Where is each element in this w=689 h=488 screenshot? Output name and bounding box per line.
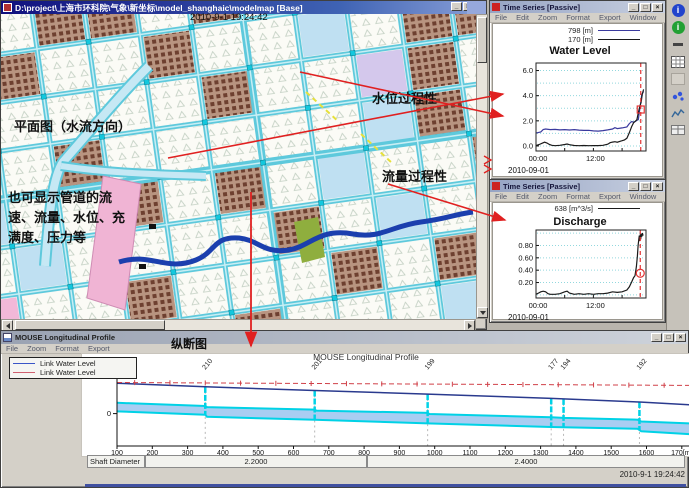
svg-text:0.60: 0.60 bbox=[518, 253, 533, 262]
svg-text:2010-09-01: 2010-09-01 bbox=[508, 313, 549, 322]
water-level-window: Time Series [Passive] _ □ × FileEditZoom… bbox=[489, 0, 666, 180]
water-level-chart: 0.02.04.06.000:0012:002010-09-01 bbox=[506, 57, 656, 177]
map-window-icon bbox=[3, 3, 12, 12]
profile-window-icon bbox=[3, 333, 12, 342]
minimize-button[interactable]: _ bbox=[451, 2, 462, 11]
profile-timestamp: 2010-9-1 19:24:42 bbox=[535, 470, 685, 479]
report-icon[interactable] bbox=[669, 54, 687, 69]
svg-text:2010-09-01: 2010-09-01 bbox=[508, 166, 549, 175]
toolbar-icons: ii bbox=[667, 0, 689, 137]
water-level-legend: 798 [m] 170 [m] bbox=[520, 26, 640, 44]
right-arrow-icon bbox=[468, 323, 472, 329]
svg-text:0.40: 0.40 bbox=[518, 266, 533, 275]
minimize-button[interactable]: _ bbox=[628, 182, 639, 191]
close-button[interactable]: × bbox=[675, 333, 686, 342]
menu-item-edit[interactable]: Edit bbox=[516, 192, 529, 201]
window-bottom-edge bbox=[85, 484, 686, 487]
discharge-legend: 638 [m^3/s] bbox=[516, 204, 640, 213]
profile-chart-title: MOUSE Longitudinal Profile bbox=[201, 352, 531, 362]
pipe-note-annotation: 也可显示管道的流速、流量、水位、充满度、压力等 bbox=[8, 188, 134, 248]
menu-item-format[interactable]: Format bbox=[566, 13, 590, 22]
menu-item-zoom[interactable]: Zoom bbox=[538, 192, 557, 201]
down-arrow-icon bbox=[480, 311, 486, 315]
legend-line-swatch bbox=[598, 30, 640, 31]
menu-item-edit[interactable]: Edit bbox=[516, 13, 529, 22]
close-button[interactable]: × bbox=[652, 3, 663, 12]
legend-line-swatch bbox=[598, 208, 640, 209]
map-vertical-scrollbar[interactable] bbox=[476, 14, 488, 319]
legend-line-swatch bbox=[13, 372, 35, 373]
water-level-window-title: Time Series [Passive] bbox=[503, 3, 625, 12]
menu-item-export[interactable]: Export bbox=[599, 192, 621, 201]
legend-line-swatch bbox=[598, 39, 640, 40]
profile-section-annotation: 纵断图 bbox=[171, 335, 207, 352]
svg-text:0.80: 0.80 bbox=[518, 241, 533, 250]
water-level-chart-title: Water Level bbox=[510, 45, 650, 57]
menu-item-export[interactable]: Export bbox=[88, 344, 110, 353]
maximize-button[interactable]: □ bbox=[640, 182, 651, 191]
water-level-hydrograph-annotation: 水位过程性 bbox=[372, 88, 437, 107]
profile-window-title: MOUSE Longitudinal Profile bbox=[15, 333, 648, 342]
profile-window-titlebar: MOUSE Longitudinal Profile _ □ × bbox=[1, 331, 688, 344]
menu-item-file[interactable]: File bbox=[6, 344, 18, 353]
legend-label: 170 [m] bbox=[568, 35, 593, 44]
chart-icon[interactable] bbox=[669, 105, 687, 120]
map-vscroll-thumb[interactable] bbox=[477, 17, 487, 63]
info-icon[interactable]: i bbox=[669, 3, 687, 18]
separator-icon[interactable] bbox=[669, 37, 687, 52]
discharge-chart: 0.200.400.600.8000:0012:002010-09-01 bbox=[506, 226, 656, 324]
discharge-window: Time Series [Passive] _ □ × FileEditZoom… bbox=[489, 179, 666, 323]
longitudinal-profile-chart: 2102011991771941921002003004005006007008… bbox=[81, 353, 689, 457]
svg-text:0: 0 bbox=[107, 409, 111, 418]
table-icon[interactable] bbox=[669, 122, 687, 137]
time-series-icon bbox=[492, 3, 500, 11]
discharge-window-buttons: _ □ × bbox=[628, 182, 663, 191]
profile-window: MOUSE Longitudinal Profile _ □ × FileZoo… bbox=[0, 330, 689, 488]
blank-icon[interactable] bbox=[669, 71, 687, 86]
minimize-button[interactable]: _ bbox=[628, 3, 639, 12]
legend-label: Link Water Level bbox=[40, 368, 96, 377]
profile-window-buttons: _ □ × bbox=[651, 333, 686, 342]
menu-item-file[interactable]: File bbox=[495, 192, 507, 201]
menu-item-window[interactable]: Window bbox=[630, 192, 657, 201]
application: D:\project\上海市环科院\气象\新坐标\model_shanghaic… bbox=[0, 0, 689, 488]
svg-text:2.0: 2.0 bbox=[523, 116, 533, 125]
legend-label: 798 [m] bbox=[568, 26, 593, 35]
water-level-window-buttons: _ □ × bbox=[628, 3, 663, 12]
ok-icon[interactable]: i bbox=[669, 20, 687, 35]
svg-text:0.20: 0.20 bbox=[518, 278, 533, 287]
map-datetime: 2010-9-1 19:24:42 bbox=[190, 12, 268, 23]
water-level-window-titlebar: Time Series [Passive] _ □ × bbox=[490, 1, 665, 13]
svg-text:12:00: 12:00 bbox=[586, 301, 605, 310]
svg-text:12:00: 12:00 bbox=[586, 154, 605, 163]
close-button[interactable]: × bbox=[652, 182, 663, 191]
map-window: D:\project\上海市环科院\气象\新坐标\model_shanghaic… bbox=[0, 0, 487, 330]
discharge-hydrograph-annotation: 流量过程性 bbox=[382, 166, 447, 185]
menu-item-zoom[interactable]: Zoom bbox=[538, 13, 557, 22]
svg-text:00:00: 00:00 bbox=[529, 301, 548, 310]
profile-legend: Link Water Level Link Water Level bbox=[9, 357, 137, 379]
titlebar-sliver bbox=[467, 1, 486, 14]
svg-text:6.0: 6.0 bbox=[523, 66, 533, 75]
shaft-diameter-value-cell: 2.4000 bbox=[367, 455, 685, 468]
shaft-diameter-label-cell: Shaft Diameter bbox=[87, 455, 145, 468]
menu-item-window[interactable]: Window bbox=[630, 13, 657, 22]
maximize-button[interactable]: □ bbox=[640, 3, 651, 12]
map-hscroll-thumb[interactable] bbox=[15, 320, 165, 330]
map-vscroll-down-button[interactable] bbox=[477, 307, 488, 318]
menu-item-format[interactable]: Format bbox=[566, 192, 590, 201]
discharge-window-title: Time Series [Passive] bbox=[503, 182, 625, 191]
shaft-diameter-value-cell: 2.2000 bbox=[145, 455, 367, 468]
left-arrow-icon bbox=[6, 323, 10, 329]
menu-item-file[interactable]: File bbox=[495, 13, 507, 22]
minimize-button[interactable]: _ bbox=[651, 333, 662, 342]
plan-view-annotation: 平面图（水流方向） bbox=[14, 116, 131, 135]
time-series-icon bbox=[492, 182, 500, 190]
legend-label: 638 [m^3/s] bbox=[554, 204, 593, 213]
legend-label: Link Water Level bbox=[40, 359, 96, 368]
svg-text:00:00: 00:00 bbox=[529, 154, 548, 163]
maximize-button[interactable]: □ bbox=[663, 333, 674, 342]
legend-line-swatch bbox=[13, 363, 35, 364]
discharge-window-titlebar: Time Series [Passive] _ □ × bbox=[490, 180, 665, 192]
svg-text:0.0: 0.0 bbox=[523, 141, 533, 150]
water-level-menubar: FileEditZoomFormatExportWindow bbox=[490, 13, 665, 23]
menu-item-format[interactable]: Format bbox=[55, 344, 79, 353]
menu-item-export[interactable]: Export bbox=[599, 13, 621, 22]
menu-item-zoom[interactable]: Zoom bbox=[27, 344, 46, 353]
discharge-menubar: FileEditZoomFormatExportWindow bbox=[490, 192, 665, 202]
svg-text:4.0: 4.0 bbox=[523, 91, 533, 100]
scatter-icon[interactable] bbox=[669, 88, 687, 103]
